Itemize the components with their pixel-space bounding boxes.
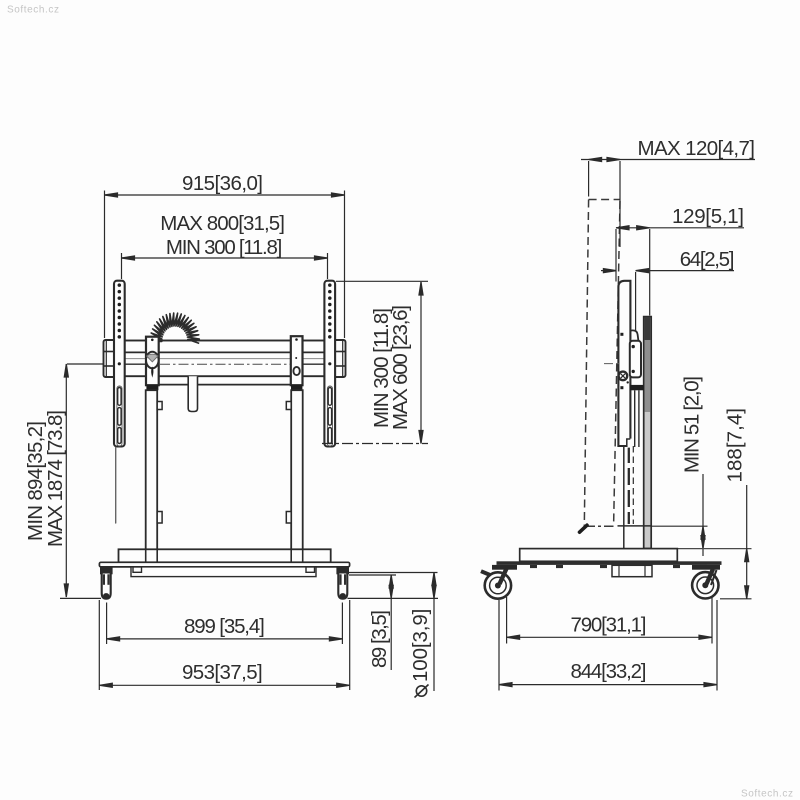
svg-text:844[33,2]: 844[33,2] [571, 660, 647, 683]
svg-text:790[31,1]: 790[31,1] [571, 614, 647, 637]
svg-text:953[37,5]: 953[37,5] [182, 661, 263, 684]
svg-text:89 [3,5]: 89 [3,5] [368, 610, 391, 668]
svg-text:MAX 800[31,5]: MAX 800[31,5] [160, 212, 285, 235]
svg-text:Softech.cz: Softech.cz [7, 5, 59, 16]
svg-text:Softech.cz: Softech.cz [741, 789, 793, 800]
svg-text:MAX 1874 [73.8]: MAX 1874 [73.8] [44, 410, 67, 547]
svg-text:MAX 120[4,7]: MAX 120[4,7] [638, 137, 756, 160]
svg-text:915[36,0]: 915[36,0] [182, 172, 263, 195]
svg-text:188[7,4]: 188[7,4] [724, 408, 747, 483]
svg-text:64[2,5]: 64[2,5] [680, 248, 735, 271]
svg-text:MIN 51 [2,0]: MIN 51 [2,0] [681, 376, 704, 473]
svg-text:MIN 300 [11.8]: MIN 300 [11.8] [166, 236, 282, 259]
svg-text:899 [35,4]: 899 [35,4] [184, 615, 265, 638]
svg-text:100[3,9]: 100[3,9] [409, 609, 432, 682]
svg-text:MAX 600 [23,6]: MAX 600 [23,6] [389, 305, 412, 430]
svg-text:129[5,1]: 129[5,1] [672, 205, 744, 228]
